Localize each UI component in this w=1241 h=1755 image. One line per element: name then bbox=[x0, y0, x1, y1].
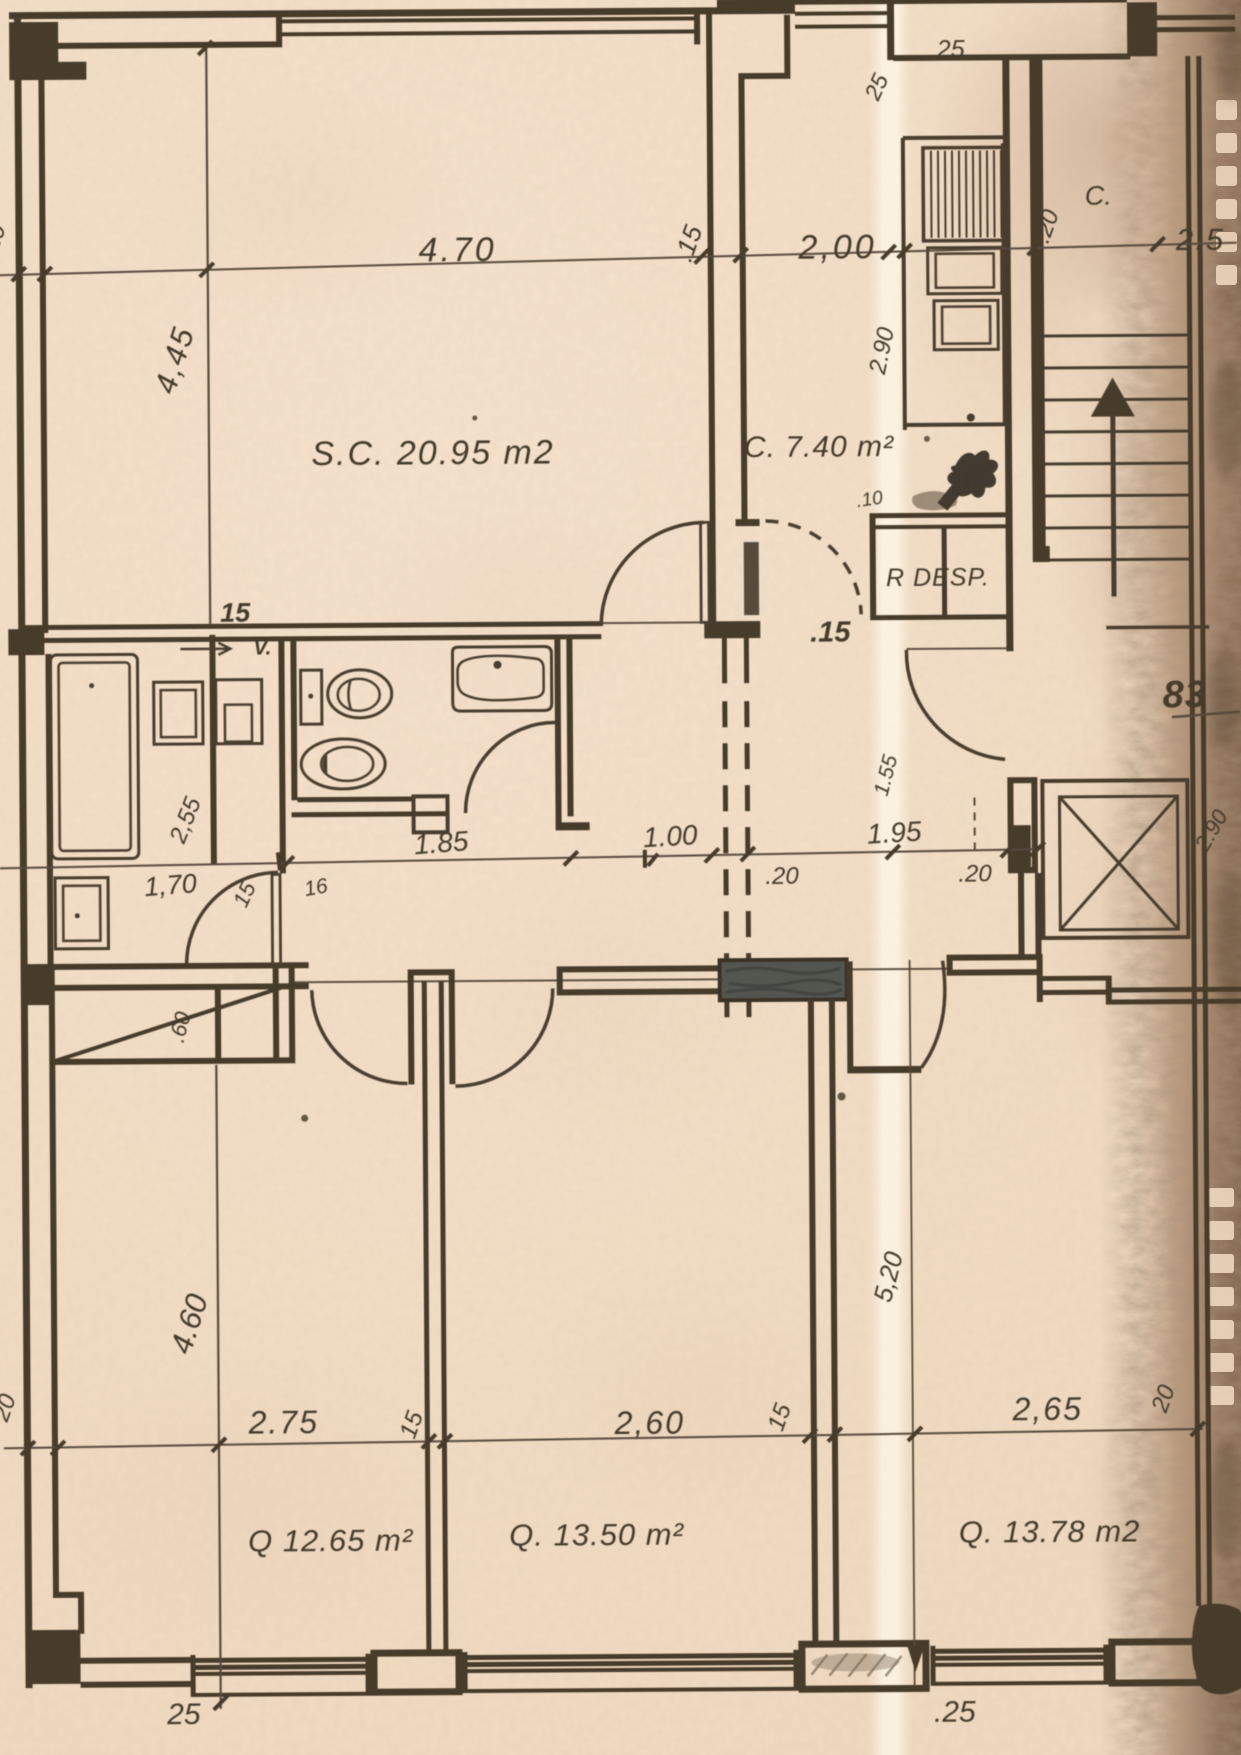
svg-text:2.5: 2.5 bbox=[1175, 222, 1225, 257]
svg-text:83: 83 bbox=[1162, 674, 1207, 716]
svg-text:2,00: 2,00 bbox=[797, 228, 876, 267]
svg-text:1.00: 1.00 bbox=[642, 819, 699, 853]
svg-text:4.70: 4.70 bbox=[418, 231, 496, 270]
svg-text:.25: .25 bbox=[934, 1696, 976, 1729]
svg-text:.25: .25 bbox=[930, 36, 965, 64]
svg-text:1.85: 1.85 bbox=[413, 825, 470, 860]
svg-text:.20: .20 bbox=[958, 860, 992, 887]
svg-text:S.C. 20.95 m2: S.C. 20.95 m2 bbox=[311, 433, 555, 473]
svg-text:.10: .10 bbox=[855, 487, 885, 512]
svg-text:C. 7.40 m²: C. 7.40 m² bbox=[744, 430, 894, 464]
svg-text:15: 15 bbox=[220, 598, 251, 628]
svg-text:C.: C. bbox=[1085, 181, 1112, 211]
svg-text:1,70: 1,70 bbox=[143, 868, 198, 902]
svg-text:V.: V. bbox=[253, 636, 271, 659]
svg-text:1.95: 1.95 bbox=[866, 815, 923, 849]
svg-text:Q. 13.50 m²: Q. 13.50 m² bbox=[509, 1517, 685, 1553]
svg-text:2,60: 2,60 bbox=[614, 1405, 686, 1441]
svg-text:25: 25 bbox=[166, 1698, 201, 1731]
svg-text:2.75: 2.75 bbox=[248, 1404, 320, 1440]
svg-text:R DESP.: R DESP. bbox=[886, 563, 990, 592]
svg-text:.20: .20 bbox=[765, 863, 799, 890]
svg-text:Q. 13.78 m2: Q. 13.78 m2 bbox=[959, 1513, 1141, 1549]
svg-text:.15: .15 bbox=[810, 616, 851, 648]
svg-text:2,65: 2,65 bbox=[1011, 1391, 1083, 1427]
svg-text:Q 12.65 m²: Q 12.65 m² bbox=[248, 1522, 414, 1558]
svg-text:16: 16 bbox=[302, 874, 329, 901]
